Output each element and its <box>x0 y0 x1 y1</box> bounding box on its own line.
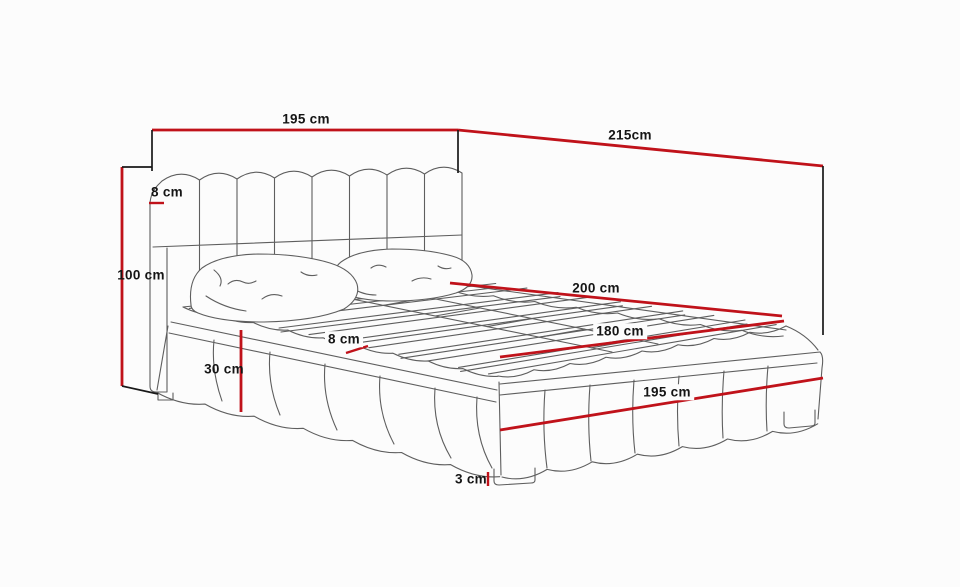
dim-label-foot-width: 195 cm <box>640 384 694 400</box>
dim-label-headboard-width: 195 cm <box>282 112 330 126</box>
bed-sketch <box>150 167 823 485</box>
dim-label-base-height: 30 cm <box>204 362 244 376</box>
pillows <box>190 249 472 322</box>
dim-label-slat-area-length: 200 cm <box>572 281 620 295</box>
dim-line-platform-depth <box>346 346 368 353</box>
dim-label-platform-depth: 8 cm <box>325 331 363 347</box>
dim-label-leg-height: 3 cm <box>455 472 487 486</box>
dim-label-mattress-width: 180 cm <box>593 323 647 339</box>
bed-dimension-diagram: 195 cm 215cm 8 cm 100 cm 200 cm 180 cm 8… <box>0 0 960 587</box>
bed-line-drawing <box>0 0 960 587</box>
dim-label-headboard-depth: 8 cm <box>151 185 183 199</box>
extension-headboard-height-bottom <box>122 386 158 394</box>
pillow-left <box>190 254 357 322</box>
dim-label-headboard-height: 100 cm <box>117 268 165 282</box>
dim-label-bed-length: 215cm <box>608 128 652 142</box>
